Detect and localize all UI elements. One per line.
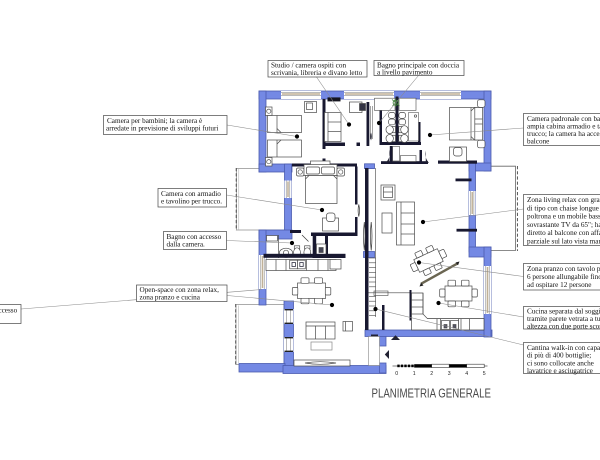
svg-text:6 persone allungabile fino: 6 persone allungabile fino [527, 273, 600, 281]
svg-text:3: 3 [448, 371, 451, 377]
svg-text:sovrastante TV da 65"; ha acce: sovrastante TV da 65"; ha accesso [527, 221, 600, 229]
svg-text:lavatrice e asciugatrice: lavatrice e asciugatrice [527, 367, 593, 375]
svg-text:Balcone con accesso: Balcone con accesso [0, 307, 18, 315]
svg-text:balcone: balcone [527, 138, 549, 146]
svg-text:arredate in previsione di svil: arredate in previsione di sviluppi futur… [106, 125, 218, 133]
svg-text:diretto al balcone con affacci: diretto al balcone con affaccio [527, 229, 600, 237]
svg-text:parziale sul lato vista mare: parziale sul lato vista mare [527, 238, 600, 246]
svg-text:Zona pranzo con tavolo per: Zona pranzo con tavolo per [527, 265, 600, 273]
svg-text:0: 0 [395, 371, 398, 377]
svg-text:Zona living relax con grande d: Zona living relax con grande divano [527, 196, 600, 204]
svg-text:dalla camera.: dalla camera. [167, 240, 206, 248]
svg-text:1: 1 [413, 371, 416, 377]
svg-text:altezza con due porte scorrevo: altezza con due porte scorrevoli [527, 323, 600, 331]
svg-text:scrivania, libreria e divano l: scrivania, libreria e divano letto [271, 69, 363, 77]
svg-text:4: 4 [465, 371, 468, 377]
svg-text:2: 2 [430, 371, 433, 377]
svg-text:5: 5 [483, 371, 486, 377]
svg-text:e tavolino per trucco.: e tavolino per trucco. [161, 197, 222, 205]
svg-text:a livello pavimento: a livello pavimento [377, 68, 433, 76]
svg-text:zona pranzo e cucina: zona pranzo e cucina [140, 293, 201, 301]
svg-text:ad ospitare 12 persone: ad ospitare 12 persone [527, 281, 591, 289]
svg-text:PLANIMETRIA GENERALE: PLANIMETRIA GENERALE [372, 386, 492, 401]
svg-text:di tipo con chaise longue e un: di tipo con chaise longue e una [527, 204, 600, 212]
svg-text:poltrona e un mobile basso con: poltrona e un mobile basso con [527, 213, 600, 221]
